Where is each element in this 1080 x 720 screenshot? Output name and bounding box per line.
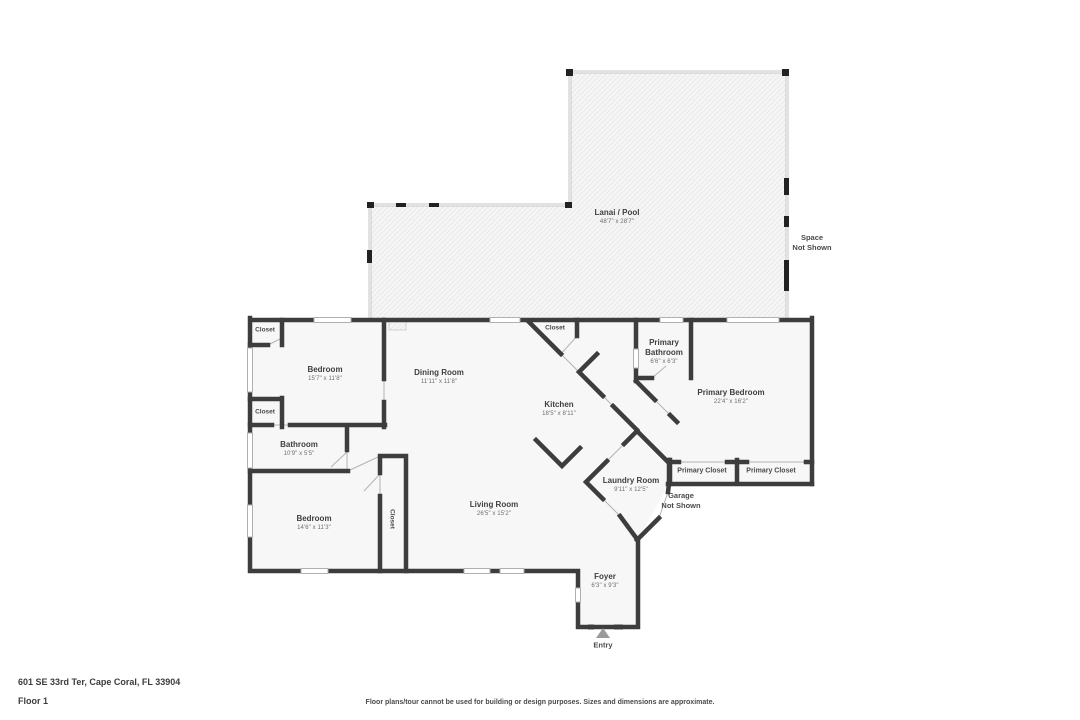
room-label-bathroom: Bathroom 10'9" x 5'5": [280, 440, 318, 459]
entry-label: Entry: [593, 641, 612, 650]
closet-label-vertical: Closet: [389, 509, 396, 529]
floorplan-drawing: [0, 0, 1080, 720]
room-label-bedroom-top: Bedroom 15'7" x 11'8": [307, 365, 342, 384]
room-label-lanai-pool: Lanai / Pool 48'7" x 28'7": [595, 208, 640, 227]
disclaimer-text: Floor plans/tour cannot be used for buil…: [0, 699, 1080, 706]
floorplan-page: Lanai / Pool 48'7" x 28'7" Bedroom 15'7"…: [0, 0, 1080, 720]
room-label-bedroom-bottom: Bedroom 14'6" x 11'3": [296, 514, 331, 533]
room-label-living-room: Living Room 26'5" x 15'2": [470, 500, 518, 519]
closet-label-hall: Closet: [545, 325, 565, 332]
room-label-foyer: Foyer 6'3" x 9'3": [591, 572, 618, 591]
room-label-kitchen: Kitchen 18'5" x 8'11": [542, 400, 576, 419]
room-label-primary-bathroom: Primary Bathroom 6'6" x 6'3": [635, 338, 693, 367]
property-address: 601 SE 33rd Ter, Cape Coral, FL 33904: [18, 677, 180, 687]
lanai-enclosure: [370, 72, 787, 320]
room-label-dining-room: Dining Room 11'11" x 11'8": [414, 368, 464, 387]
note-space-not-shown: Space Not Shown: [792, 233, 831, 253]
entry-arrow-icon: [596, 628, 610, 638]
room-label-laundry-room: Laundry Room 9'11" x 12'5": [603, 476, 659, 495]
closet-label-primary-1: Primary Closet: [677, 468, 726, 475]
closet-label-mid-left: Closet: [255, 409, 275, 416]
closet-label-top-left: Closet: [255, 327, 275, 334]
closet-label-primary-2: Primary Closet: [746, 468, 795, 475]
room-label-primary-bedroom: Primary Bedroom 22'4" x 16'2": [697, 388, 764, 407]
note-garage-not-shown: Garage Not Shown: [661, 491, 700, 511]
